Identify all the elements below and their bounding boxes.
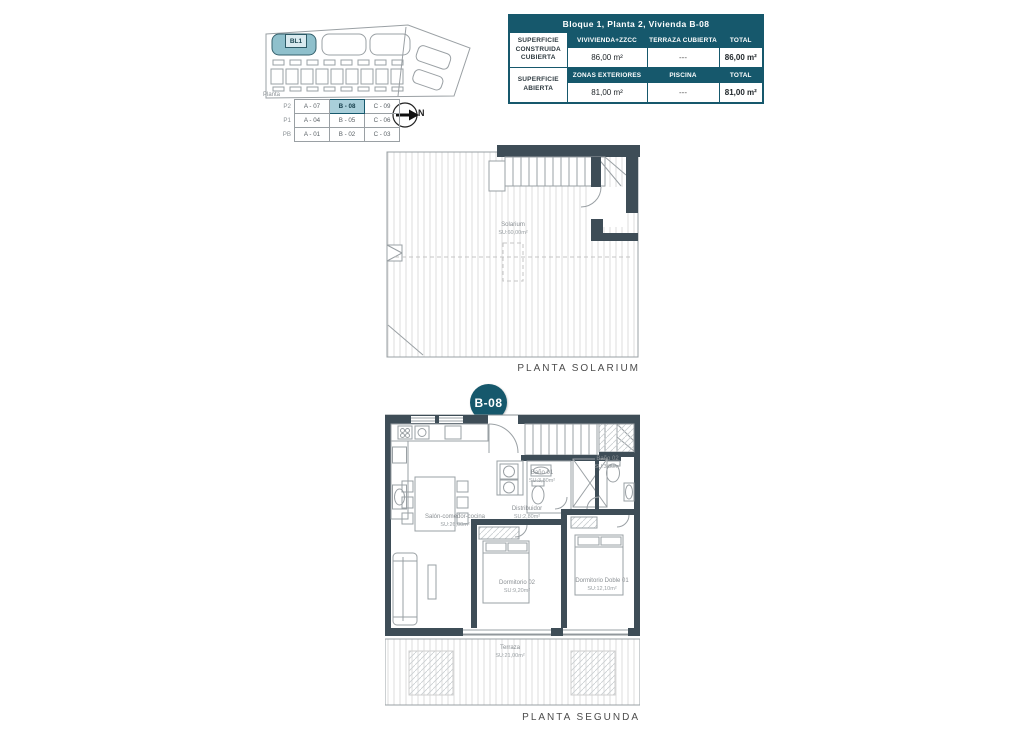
open-surface-label: SUPERFICIE ABIERTA <box>509 68 567 104</box>
legend-cell: C - 03 <box>365 128 400 142</box>
dorm2-label: Dormitorio 02 SU:9,20m² <box>487 580 547 595</box>
block-1-tag: BL1 <box>285 34 307 48</box>
covered-total-value: 86,00 m² <box>719 48 763 68</box>
covered-dwelling-value: 86,00 m² <box>567 48 647 68</box>
col-header: VIVIVIENDA+ZZCC <box>567 33 647 48</box>
legend-cell: A - 04 <box>295 114 330 128</box>
col-header: TOTAL <box>719 33 763 48</box>
legend-level: P2 <box>276 100 295 114</box>
legend-row-p2: P2 A - 07 B - 08 C - 09 <box>276 100 400 114</box>
room-area: SU:60,00m² <box>478 230 548 237</box>
solarium-room-label: Solarium SU:60,00m² <box>478 222 548 237</box>
col-header: PISCINA <box>647 68 719 83</box>
legend-cell: C - 06 <box>365 114 400 128</box>
room-name: Dormitorio 02 <box>487 580 547 588</box>
legend-row-pb: PB A - 01 B - 02 C - 03 <box>276 128 400 142</box>
floorplan-sheet: BL1 N Planta P2 A - 07 B - 08 C - 09 P1 … <box>0 0 1024 732</box>
room-area: SU:3,80m² <box>585 464 630 471</box>
legend-level: PB <box>276 128 295 142</box>
dorm1-label: Dormitorio Doble 01 SU:12,10m² <box>570 578 634 593</box>
outdoor-shower <box>387 245 402 261</box>
room-name: Baño 02 <box>585 456 630 464</box>
room-name: Salón-comedor-cocina <box>420 514 490 522</box>
legend-cell: B - 05 <box>330 114 365 128</box>
room-area: SU:9,20m² <box>487 588 547 595</box>
col-header: ZONAS EXTERIORES <box>567 68 647 83</box>
unit-legend-table: P2 A - 07 B - 08 C - 09 P1 A - 04 B - 05… <box>276 99 400 142</box>
site-plan-map <box>258 14 476 110</box>
legend-cell: C - 09 <box>365 100 400 114</box>
room-name: Solarium <box>478 222 548 230</box>
room-name: Distribuidor <box>497 506 557 514</box>
site-divider <box>398 27 406 96</box>
legend-row-p1: P1 A - 04 B - 05 C - 06 <box>276 114 400 128</box>
room-name: Baño 01 <box>517 470 567 478</box>
legend-cell: A - 01 <box>295 128 330 142</box>
salon-label: Salón-comedor-cocina SU:26,00m² <box>420 514 490 529</box>
room-name: Terraza <box>480 645 540 653</box>
bano2-label: Baño 02 SU:3,80m² <box>585 456 630 471</box>
surface-summary-table: Bloque 1, Planta 2, Vivienda B-08 SUPERF… <box>508 14 764 104</box>
col-header: TERRAZA CUBIERTA <box>647 33 719 48</box>
parking-row-top <box>273 60 403 65</box>
covered-terrace-value: --- <box>647 48 719 68</box>
building-blocks <box>322 34 410 55</box>
room-name: Dormitorio Doble 01 <box>570 578 634 586</box>
solarium-floorplan <box>385 145 640 360</box>
solarium-shaft <box>489 161 505 191</box>
distribuidor-label: Distribuidor SU:2,80m² <box>497 506 557 521</box>
townhouse-row <box>271 69 403 84</box>
open-total-value: 81,00 m² <box>719 83 763 104</box>
legend-level: P1 <box>276 114 295 128</box>
room-area: SU:12,10m² <box>570 586 634 593</box>
parking-row-bottom <box>273 87 403 91</box>
open-exterior-value: 81,00 m² <box>567 83 647 104</box>
room-area: SU:21,00m² <box>480 653 540 660</box>
room-area: SU:3,80m² <box>517 478 567 485</box>
legend-cell-highlighted: B - 08 <box>330 100 365 114</box>
side-wing-buildings <box>408 44 453 91</box>
table-title: Bloque 1, Planta 2, Vivienda B-08 <box>509 15 763 33</box>
room-area: SU:2,80m² <box>497 514 557 521</box>
solarium-caption: PLANTA SOLARIUM <box>460 363 640 374</box>
bano1-label: Baño 01 SU:3,80m² <box>517 470 567 485</box>
legend-cell: B - 02 <box>330 128 365 142</box>
terraza-label: Terraza SU:21,00m² <box>480 645 540 660</box>
legend-title: Planta <box>263 92 280 98</box>
room-area: SU:26,00m² <box>420 522 490 529</box>
segunda-caption: PLANTA SEGUNDA <box>460 712 640 723</box>
north-letter: N <box>418 108 425 118</box>
legend-cell: A - 07 <box>295 100 330 114</box>
covered-surface-label: SUPERFICIE CONSTRUIDA CUBIERTA <box>509 33 567 68</box>
open-pool-value: --- <box>647 83 719 104</box>
col-header: TOTAL <box>719 68 763 83</box>
